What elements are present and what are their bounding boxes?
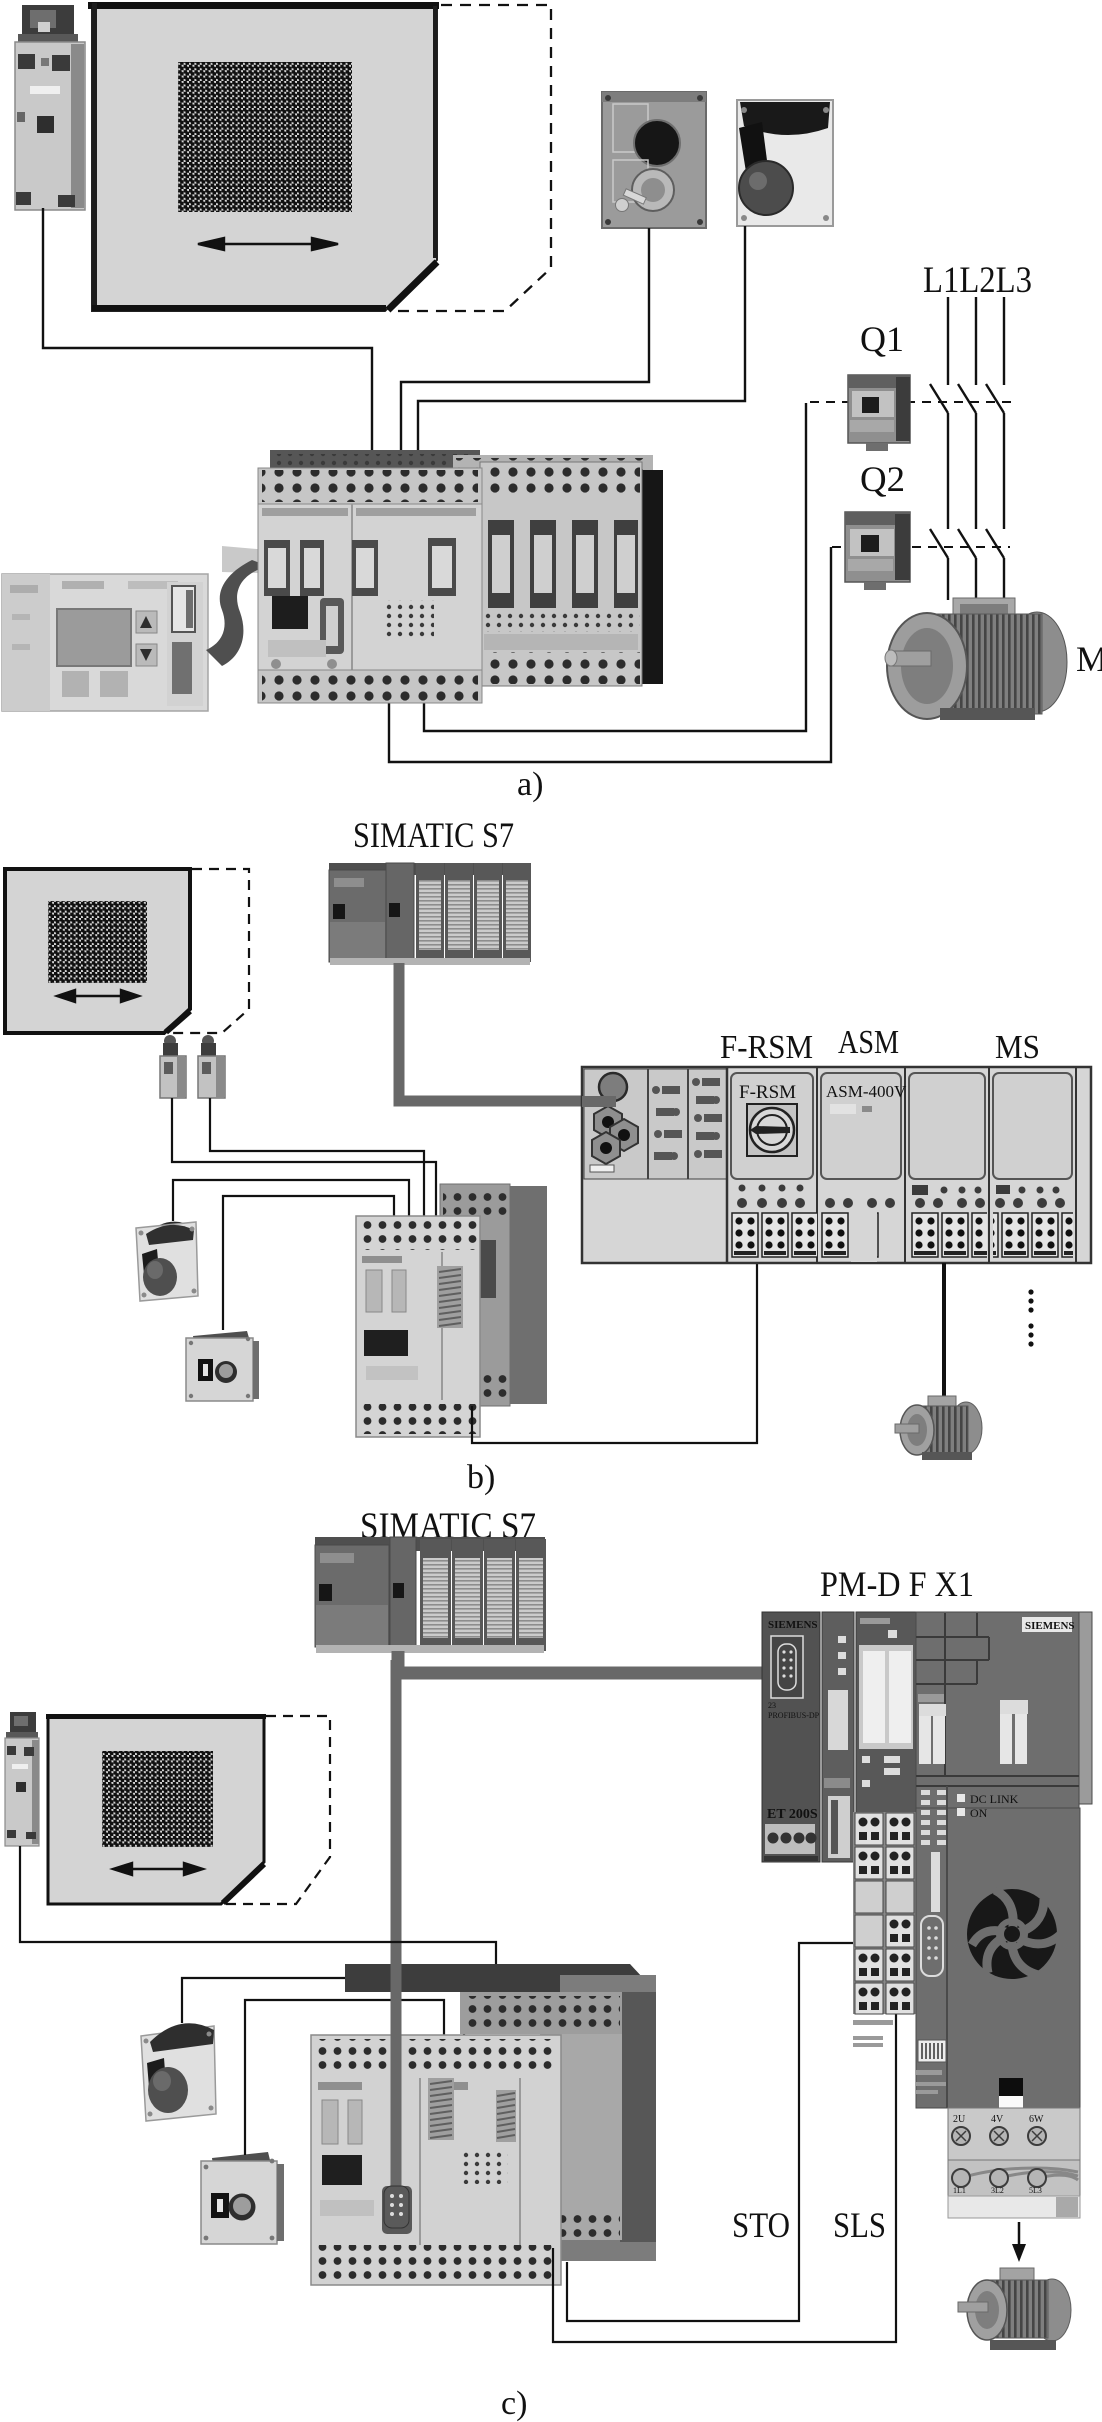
svg-text:1L1: 1L1 (953, 2186, 966, 2195)
svg-text:SLS: SLS (833, 2205, 886, 2245)
svg-text:F-RSM: F-RSM (720, 1029, 813, 1066)
svg-text:M: M (1076, 639, 1102, 679)
svg-text:b): b) (467, 1459, 495, 1496)
svg-text:DC LINK: DC LINK (970, 1792, 1019, 1806)
svg-text:L1L2L3: L1L2L3 (923, 260, 1032, 301)
svg-text:Q1: Q1 (860, 319, 904, 359)
svg-text:Q2: Q2 (860, 459, 905, 499)
svg-text:STO: STO (732, 2205, 790, 2245)
svg-text:MS: MS (995, 1029, 1040, 1066)
svg-text:ASM-400V: ASM-400V (826, 1082, 907, 1101)
svg-text:3L2: 3L2 (991, 2186, 1004, 2195)
svg-text:6W: 6W (1029, 2114, 1044, 2125)
svg-text:a): a) (517, 766, 543, 803)
svg-text:23: 23 (768, 1701, 776, 1710)
svg-text:ASM: ASM (838, 1024, 899, 1061)
svg-text:PM-D F X1: PM-D F X1 (820, 1564, 974, 1604)
svg-text:5L3: 5L3 (1029, 2186, 1042, 2195)
svg-text:SIMATIC S7: SIMATIC S7 (353, 815, 514, 855)
svg-text:4V: 4V (991, 2114, 1004, 2125)
svg-text:SIEMENS: SIEMENS (768, 1619, 818, 1631)
svg-text:2U: 2U (953, 2114, 966, 2125)
svg-text:c): c) (501, 2385, 527, 2422)
svg-text:ET 200S: ET 200S (767, 1807, 818, 1822)
svg-text:SIEMENS: SIEMENS (1025, 1620, 1075, 1632)
svg-text:F-RSM: F-RSM (739, 1082, 796, 1103)
svg-text:PROFIBUS-DP: PROFIBUS-DP (768, 1711, 820, 1720)
svg-text:ON: ON (970, 1806, 988, 1820)
